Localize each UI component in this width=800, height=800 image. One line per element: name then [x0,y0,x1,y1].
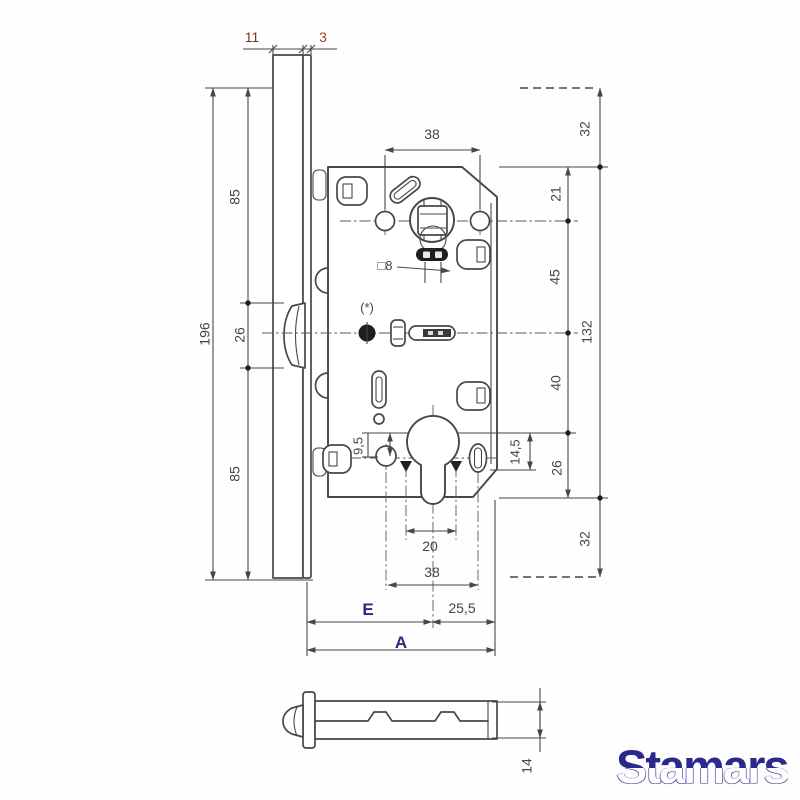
dim-cyl-9-5: 9,5 [351,437,366,455]
dim-right-40: 40 [548,375,564,391]
dim-faceplate-lip: 11 [245,29,260,45]
dim-bottom-20: 20 [422,538,438,554]
note-star: (*) [360,300,374,315]
dim-25-5: 25,5 [448,600,475,616]
dim-top-38: 38 [424,126,440,142]
dim-latch-14: 14 [519,758,535,774]
dim-total-A: A [395,633,407,652]
dim-cyl-14-5: 14,5 [508,439,523,464]
dim-left-top: 85 [227,189,243,205]
dim-right-26: 26 [549,460,565,476]
mortise-lock-technical-drawing: 11 3 85 196 26 85 38 32 21 45 132 40 14,… [0,0,800,800]
dim-right-132: 132 [579,320,595,344]
cylinder-screw-hole-left [376,446,396,466]
dim-right-32-bottom: 32 [577,531,593,547]
dim-faceplate-thickness: 3 [319,29,327,45]
dim-right-45: 45 [547,269,563,285]
dim-left-bottom: 85 [227,466,243,482]
dim-backset-E: E [362,600,373,619]
dim-left-total: 196 [197,322,213,346]
dim-right-32-top: 32 [577,121,593,137]
label-square-spindle: □8 [377,258,392,273]
dim-right-21: 21 [548,186,564,202]
stop-pin [391,320,405,346]
handle-screw-hole-right [471,212,490,231]
handle-screw-hole-left [376,212,395,231]
latch-tip [283,705,303,737]
brand-logo: Stamars Stamars [616,741,800,797]
follower-spring [416,248,448,261]
dim-left-latch: 26 [232,327,248,343]
bottom-view-latch [283,688,546,752]
dim-bottom-38: 38 [424,564,440,580]
